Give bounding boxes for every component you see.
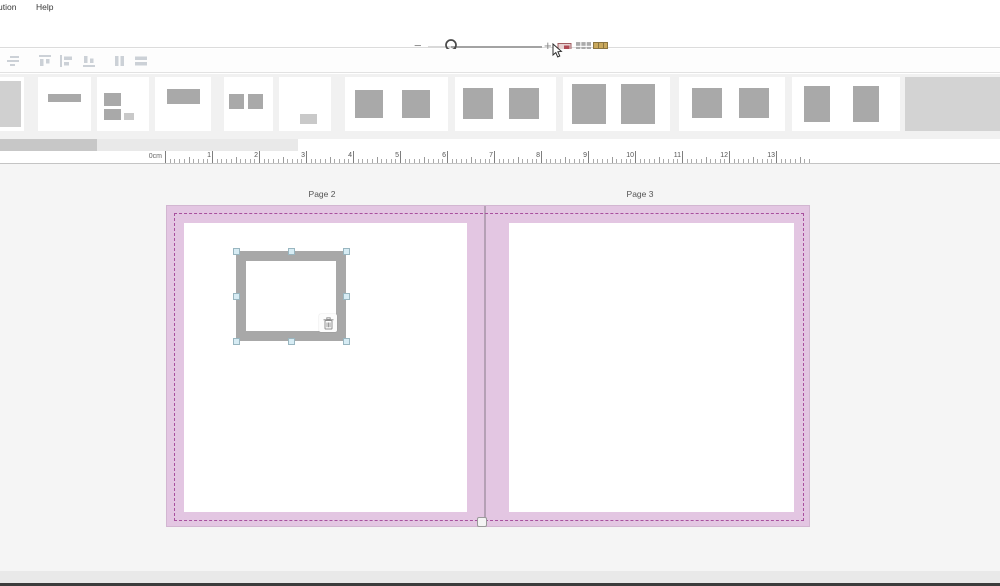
page-3-content-area[interactable] (509, 223, 794, 512)
alignment-toolbar (0, 49, 1000, 73)
resize-handle-top-center[interactable] (288, 248, 295, 255)
distribute-columns-icon[interactable] (112, 55, 126, 67)
template-thumbnail-two-images-caption[interactable] (97, 77, 149, 131)
resize-handle-bottom-center[interactable] (288, 338, 295, 345)
ruler: 0cm 12345678910111213 (0, 151, 1000, 164)
ruler-ticks: 12345678910111213 (165, 151, 815, 163)
page-spread[interactable] (166, 205, 810, 527)
resize-handle-bottom-right[interactable] (343, 338, 350, 345)
distribute-rows-icon[interactable] (134, 55, 148, 67)
template-thumbnail-spread-portrait[interactable] (792, 77, 900, 131)
template-thumbnail-landscape-top[interactable] (155, 77, 211, 131)
template-scrollbar[interactable] (0, 139, 298, 151)
page-3-label: Page 3 (627, 189, 654, 199)
photobook-editor-window: ution Help − + (0, 0, 1000, 586)
resize-handle-middle-left[interactable] (233, 293, 240, 300)
template-thumbnail-spread-squares-1[interactable] (345, 77, 448, 131)
spine-handle[interactable] (477, 517, 487, 527)
menu-item-resolution[interactable]: ution (0, 2, 16, 12)
align-text-icon[interactable] (6, 55, 20, 67)
canvas-area[interactable]: Page 2 Page 3 (0, 164, 1000, 571)
zoom-toolbar: − + (0, 15, 1000, 48)
template-thumbnail-spread-squares-4[interactable] (679, 77, 785, 131)
bottom-strip (0, 571, 1000, 583)
align-top-icon[interactable] (38, 55, 52, 67)
template-thumbnail-two-small-squares[interactable] (224, 77, 273, 131)
delete-button[interactable] (319, 314, 337, 332)
resize-handle-top-right[interactable] (343, 248, 350, 255)
template-thumbnail-spread-squares-2[interactable] (455, 77, 556, 131)
menu-bar: ution Help (0, 0, 1000, 15)
menu-item-help[interactable]: Help (36, 2, 53, 12)
template-scrollbar-thumb[interactable] (0, 139, 97, 151)
resize-handle-top-left[interactable] (233, 248, 240, 255)
template-thumbnail-title-bar[interactable] (38, 77, 91, 131)
template-thumbnail-spread-squares-3[interactable] (563, 77, 670, 131)
align-left-icon[interactable] (60, 55, 74, 67)
template-thumbnail-full-page[interactable] (0, 77, 24, 131)
template-thumbnail-caption-bottom[interactable] (279, 77, 331, 131)
trash-icon (323, 317, 334, 330)
ruler-unit-label: 0cm (132, 153, 162, 160)
align-bottom-icon[interactable] (82, 55, 96, 67)
mouse-cursor (552, 43, 564, 59)
template-strip (0, 74, 1000, 139)
template-thumbnail-plain-gray[interactable] (905, 77, 1000, 131)
page-2-label: Page 2 (309, 189, 336, 199)
resize-handle-bottom-left[interactable] (233, 338, 240, 345)
resize-handle-middle-right[interactable] (343, 293, 350, 300)
